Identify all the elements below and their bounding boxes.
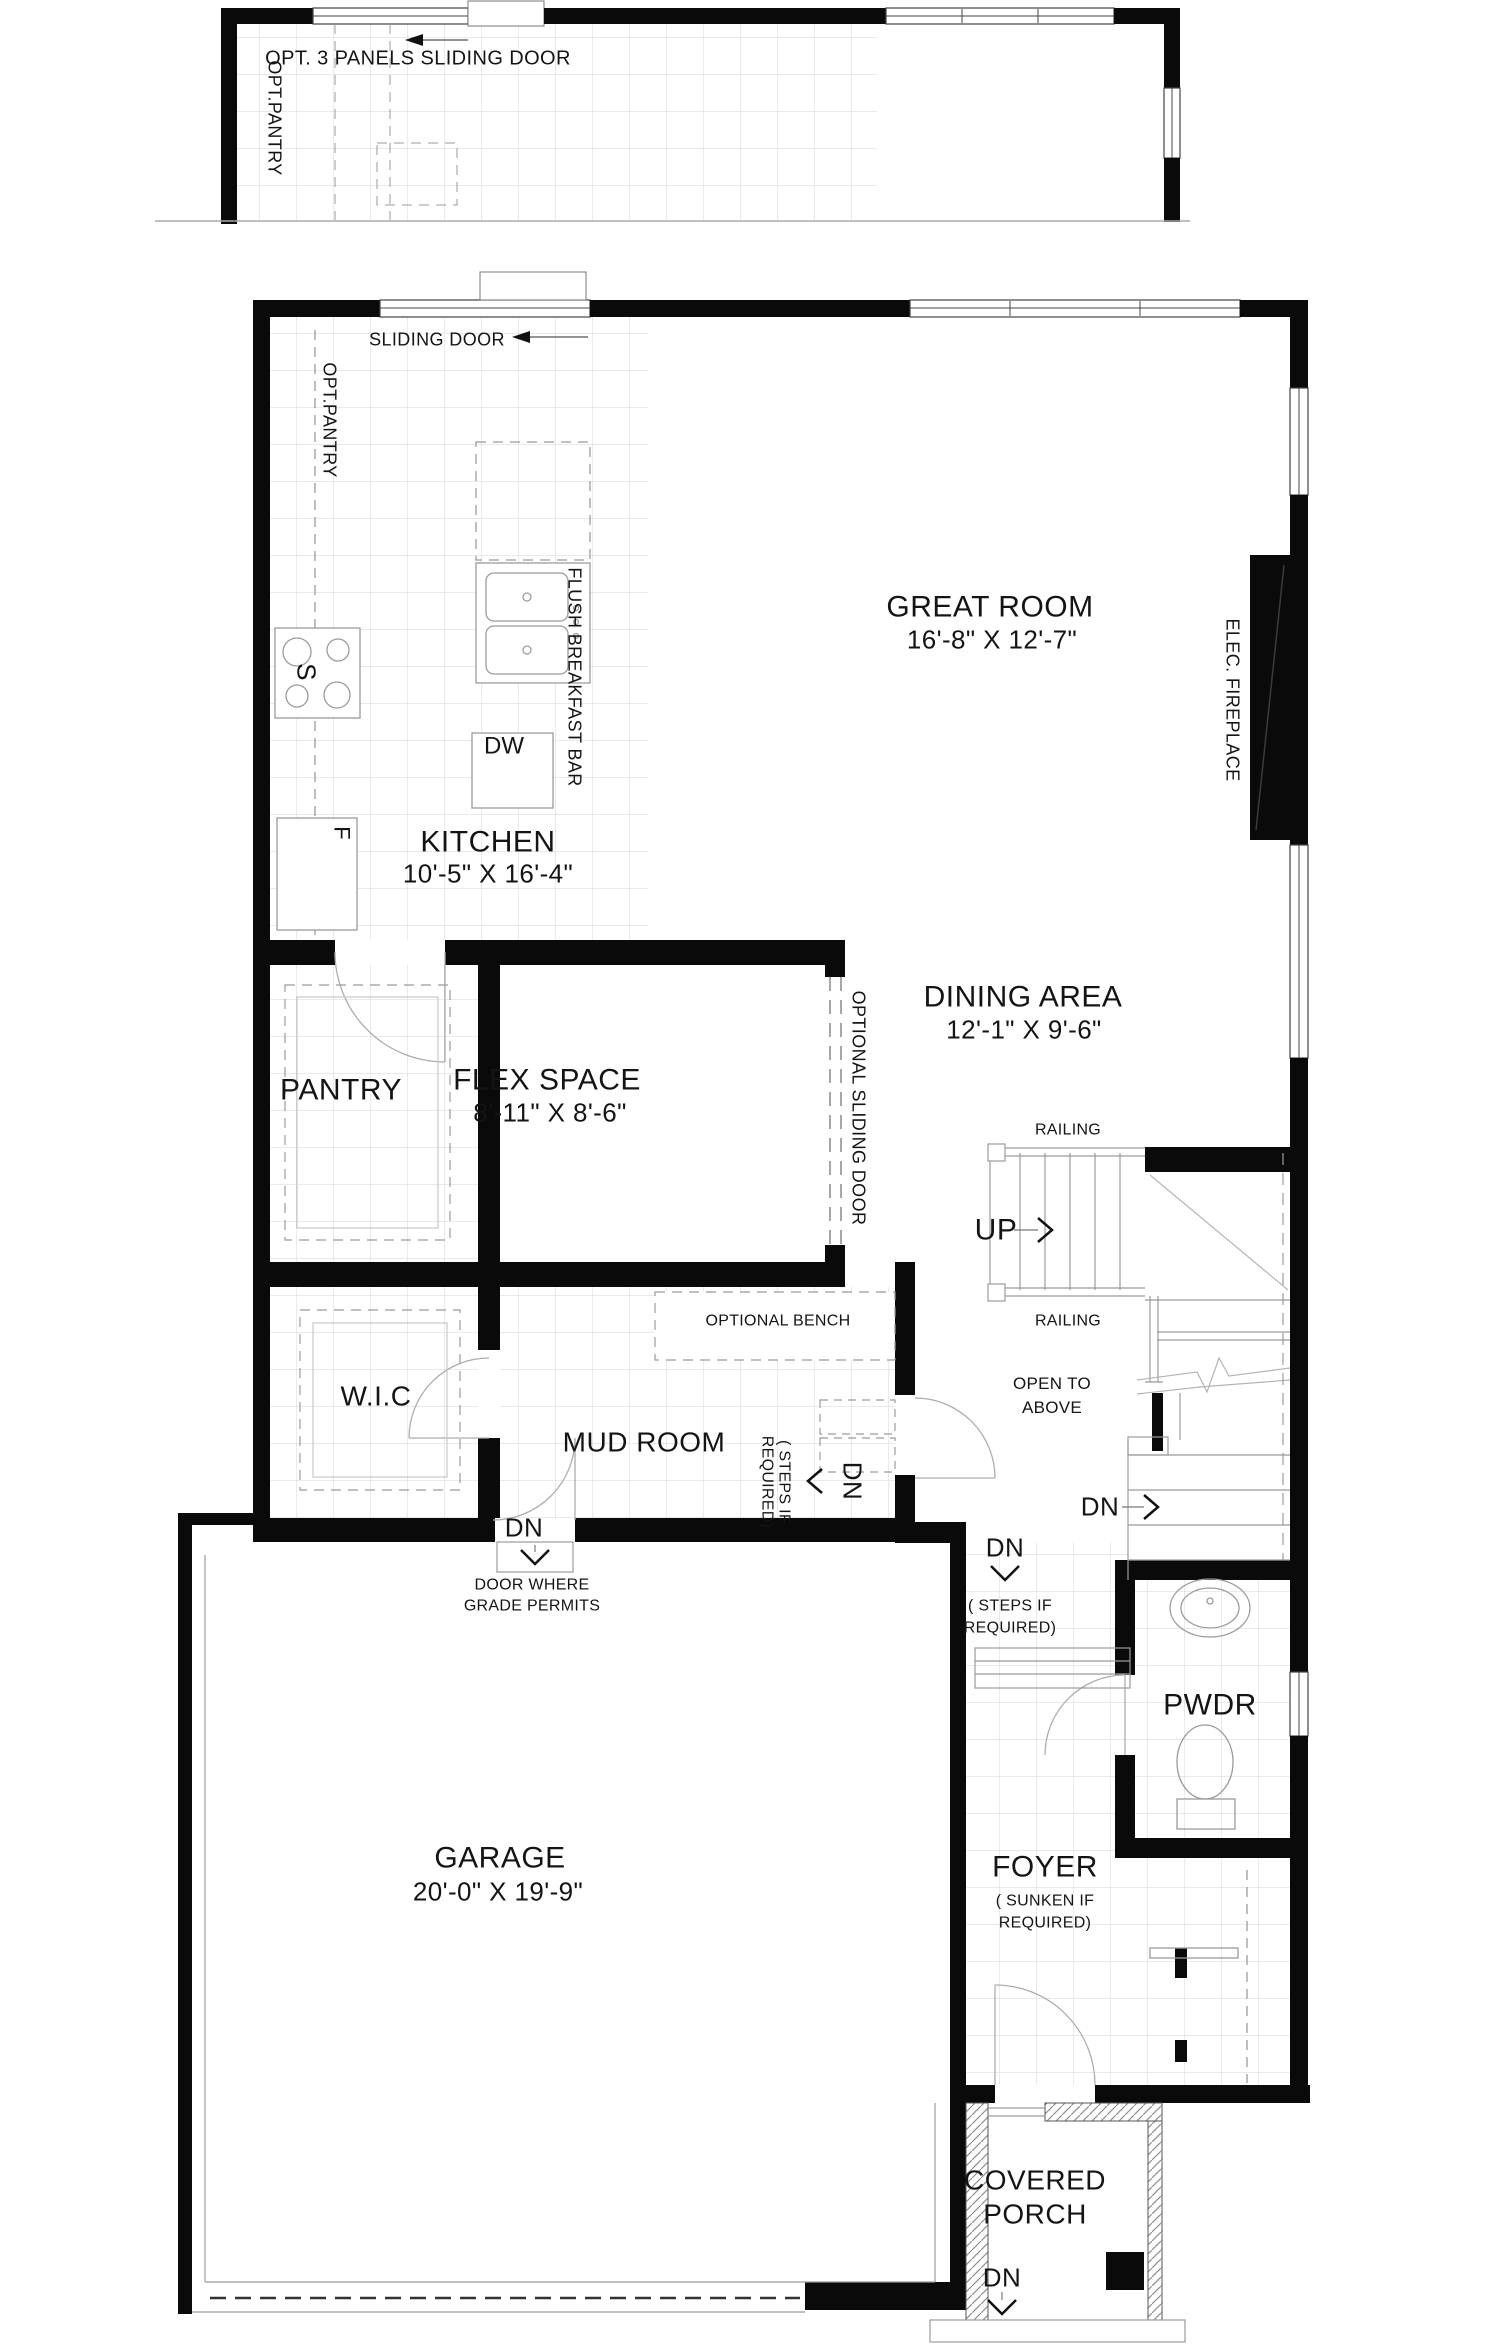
railing-label-bottom: RAILING bbox=[1035, 1314, 1101, 1331]
room-label-mud-room: MUD ROOM bbox=[563, 1427, 726, 1456]
mudroom-steps-note: ( STEPS IF REQUIRED) bbox=[758, 1436, 791, 1528]
foyer-dn-label: DN bbox=[986, 1534, 1025, 1561]
room-label-wic: W.I.C bbox=[341, 1381, 412, 1410]
mudroom-foyer-door bbox=[915, 1398, 995, 1478]
porch-column bbox=[1106, 2252, 1144, 2290]
open-to-above-label-2: ABOVE bbox=[1022, 1399, 1082, 1417]
room-label-dining: DINING AREA bbox=[924, 981, 1123, 1012]
floor-plan: OPT. 3 PANELS SLIDING DOOR OPT.PANTRY SL… bbox=[0, 0, 1500, 2346]
elec-fireplace-label: ELEC. FIREPLACE bbox=[1223, 618, 1242, 781]
room-label-flex: FLEX SPACE bbox=[453, 1064, 641, 1095]
mudroom-steps-note-line2: REQUIRED) bbox=[758, 1436, 775, 1528]
door-grade-label-2: GRADE PERMITS bbox=[464, 1599, 600, 1616]
flush-breakfast-bar-label: FLUSH BREAKFAST BAR bbox=[565, 567, 584, 786]
mudroom-dn-label: DN bbox=[838, 1462, 865, 1501]
dishwasher-label: DW bbox=[484, 735, 524, 760]
opt-pantry-label: OPT.PANTRY bbox=[320, 362, 339, 477]
foyer-steps-note-2: REQUIRED) bbox=[964, 1621, 1056, 1638]
room-label-pwdr: PWDR bbox=[1163, 1689, 1257, 1720]
stairs-dn-label: DN bbox=[1081, 1493, 1120, 1520]
room-dims-great-room: 16'-8" X 12'-7" bbox=[907, 626, 1077, 653]
optional-sliding-door-dashes bbox=[830, 977, 841, 1245]
garage-dn-arrow-icon bbox=[521, 1545, 549, 1564]
garage-dn-label: DN bbox=[505, 1514, 544, 1541]
optional-bench-label: OPTIONAL BENCH bbox=[706, 1314, 851, 1331]
room-dims-kitchen: 10'-5" X 16'-4" bbox=[403, 860, 573, 887]
room-label-pantry: PANTRY bbox=[280, 1074, 402, 1105]
porch-dn-label: DN bbox=[983, 2264, 1022, 2291]
optional-sliding-door-label: OPTIONAL SLIDING DOOR bbox=[849, 991, 868, 1226]
floor-plan-drawing bbox=[0, 0, 1500, 2346]
room-dims-dining: 12'-1" X 9'-6" bbox=[946, 1016, 1101, 1043]
sliding-door-label: SLIDING DOOR bbox=[369, 331, 505, 350]
room-label-kitchen: KITCHEN bbox=[420, 826, 555, 857]
room-label-porch-2: PORCH bbox=[983, 2199, 1087, 2228]
landing-railing bbox=[1145, 1296, 1163, 1382]
foyer-steps-note-1: ( STEPS IF bbox=[968, 1599, 1052, 1616]
foyer-note-1: ( SUNKEN IF bbox=[996, 1894, 1094, 1911]
mudroom-steps-note-line1: ( STEPS IF bbox=[775, 1436, 792, 1528]
fireplace bbox=[1250, 555, 1290, 840]
porch-dn-arrow-icon bbox=[988, 2292, 1016, 2314]
room-label-porch-1: COVERED bbox=[964, 2165, 1106, 2194]
inset-pantry-label: OPT.PANTRY bbox=[265, 60, 284, 175]
room-label-garage: GARAGE bbox=[434, 1842, 565, 1873]
up-label: UP bbox=[975, 1214, 1018, 1245]
room-label-foyer: FOYER bbox=[992, 1851, 1098, 1882]
room-dims-flex: 8'-11" X 8'-6" bbox=[473, 1099, 626, 1126]
open-to-above-label-1: OPEN TO bbox=[1013, 1375, 1091, 1393]
stove-label: S bbox=[292, 663, 319, 681]
break-line bbox=[1137, 1358, 1290, 1394]
room-dims-garage: 20'-0" X 19'-9" bbox=[413, 1878, 583, 1905]
door-grade-label-1: DOOR WHERE bbox=[475, 1578, 590, 1595]
garage-details bbox=[192, 1555, 935, 2312]
room-label-great-room: GREAT ROOM bbox=[886, 591, 1093, 622]
railing-label-top: RAILING bbox=[1035, 1123, 1101, 1140]
inset-door-label: OPT. 3 PANELS SLIDING DOOR bbox=[265, 49, 571, 70]
foyer-note-2: REQUIRED) bbox=[999, 1916, 1091, 1933]
fridge-label: F bbox=[330, 826, 353, 839]
